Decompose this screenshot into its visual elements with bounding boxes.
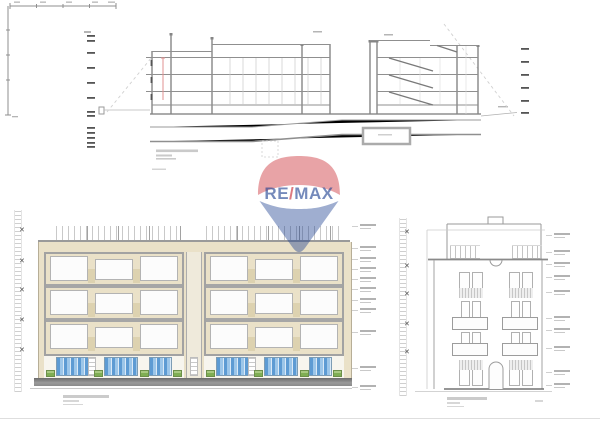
remax-balloon-watermark: RE/MAX [0, 0, 600, 424]
remax-wordmark: RE/MAX [264, 184, 333, 203]
balloon-envelope-bottom [260, 201, 339, 252]
wordmark-max: MAX [294, 184, 333, 203]
drawing-sheet: RE/MAX ✕✕✕✕✕✕✕✕✕✕ [0, 0, 600, 424]
wordmark-re: RE [264, 184, 289, 203]
